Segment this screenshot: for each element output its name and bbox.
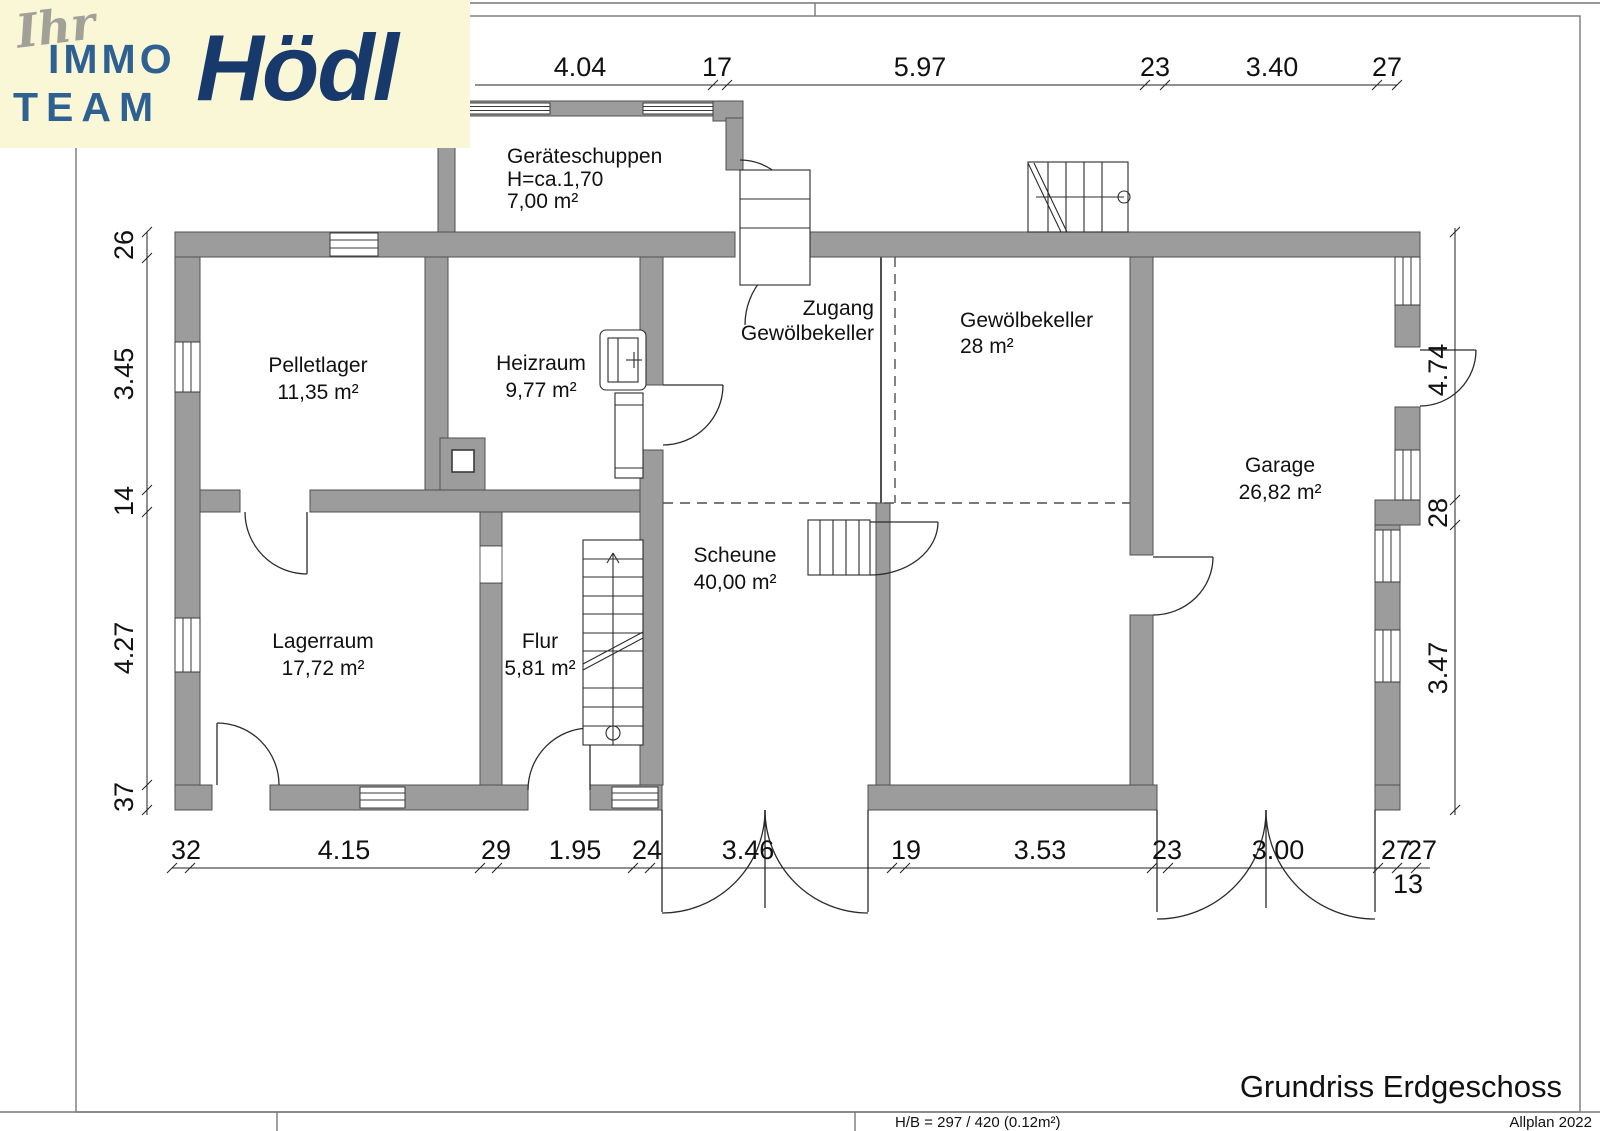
- logo-word-immo: IMMO: [48, 36, 176, 83]
- footer-app: Allplan 2022: [1509, 1114, 1592, 1131]
- chimney: [452, 450, 474, 472]
- dim-right-2: 3.47: [1423, 642, 1453, 695]
- company-logo: Ihr IMMO TEAM Hödl: [0, 0, 470, 148]
- dim-bottom-4: 24: [632, 835, 662, 865]
- dim-left-0: 26: [109, 230, 139, 260]
- dim-bottom-1: 4.15: [318, 835, 371, 865]
- dim-top-4: 3.40: [1246, 52, 1299, 82]
- room-heizraum-area: 9,77 m²: [505, 379, 576, 402]
- room-scheune-name: Scheune: [694, 544, 777, 567]
- flue-icon: [615, 393, 643, 478]
- room-geraeteschuppen-height: H=ca.1,70: [507, 168, 603, 191]
- dim-top-3: 23: [1140, 52, 1170, 82]
- boiler-icon: [600, 330, 646, 390]
- room-lagerraum-area: 17,72 m²: [282, 657, 365, 680]
- footer-scale: H/B = 297 / 420 (0.12m²): [895, 1114, 1061, 1131]
- dim-bottom-2: 29: [481, 835, 511, 865]
- room-pelletlager-name: Pelletlager: [268, 354, 367, 377]
- floorplan-sheet: 4.04 17 5.97 23 3.40 27 26 3.45 14 4.27 …: [0, 0, 1600, 1131]
- dim-bottom-3: 1.95: [549, 835, 602, 865]
- dim-right-1: 28: [1423, 498, 1453, 528]
- dim-right-0: 4.74: [1423, 344, 1453, 397]
- room-heizraum-name: Heizraum: [496, 352, 586, 375]
- floorplan-drawing: 4.04 17 5.97 23 3.40 27 26 3.45 14 4.27 …: [0, 0, 1600, 1131]
- dim-top-1: 17: [702, 52, 732, 82]
- dim-bottom-7: 3.53: [1014, 835, 1067, 865]
- room-pelletlager-area: 11,35 m²: [277, 381, 358, 404]
- dim-bottom-0: 32: [171, 835, 201, 865]
- dim-bottom-8: 23: [1152, 835, 1182, 865]
- dim-bottom-11: 27: [1407, 835, 1437, 865]
- dim-left-3: 4.27: [109, 622, 139, 675]
- dim-left-2: 14: [109, 486, 139, 516]
- dim-bottom-9: 3.00: [1252, 835, 1305, 865]
- page-title: Grundriss Erdgeschoss: [1240, 1069, 1562, 1104]
- dim-bottom-sub: 13: [1393, 869, 1423, 899]
- room-flur-area: 5,81 m²: [504, 657, 575, 680]
- room-geraeteschuppen-name: Geräteschuppen: [507, 145, 662, 168]
- room-geraeteschuppen-area: 7,00 m²: [507, 190, 578, 213]
- steps-zugang: [740, 170, 810, 285]
- dim-top-2: 5.97: [894, 52, 947, 82]
- dim-top-5: 27: [1372, 52, 1402, 82]
- room-zugang-line1: Zugang: [803, 297, 874, 320]
- stairs-cellar: [808, 520, 870, 575]
- room-garage-name: Garage: [1245, 454, 1315, 477]
- room-flur-name: Flur: [522, 630, 558, 653]
- room-gewoelbekeller-name: Gewölbekeller: [960, 309, 1093, 332]
- stairs-flur: [583, 540, 643, 745]
- room-garage-area: 26,82 m²: [1239, 481, 1322, 504]
- dim-left-1: 3.45: [109, 348, 139, 401]
- dim-bottom-5: 3.46: [722, 835, 775, 865]
- logo-word-team: TEAM: [13, 84, 161, 131]
- room-scheune-area: 40,00 m²: [694, 571, 777, 594]
- room-lagerraum-name: Lagerraum: [272, 630, 374, 653]
- partition-lines: [663, 257, 1130, 503]
- logo-brand-name: Hödl: [196, 14, 397, 122]
- dim-bottom-6: 19: [891, 835, 921, 865]
- room-gewoelbekeller-area: 28 m²: [960, 335, 1014, 358]
- stairs-exterior: [1028, 162, 1130, 232]
- dim-top-0: 4.04: [554, 52, 607, 82]
- room-zugang-line2: Gewölbekeller: [741, 322, 874, 345]
- dim-left-4: 37: [109, 782, 139, 812]
